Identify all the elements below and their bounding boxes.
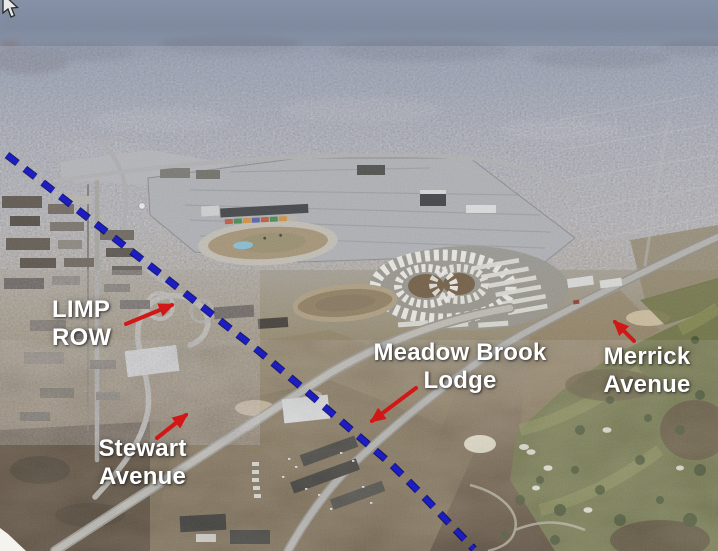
- label-stewart-avenue: Stewart Avenue: [90, 435, 195, 491]
- label-meadow-brook-lodge: Meadow Brook Lodge: [362, 339, 558, 395]
- label-merrick-avenue: Merrick Avenue: [592, 343, 702, 399]
- atmospheric-haze: [0, 0, 718, 140]
- label-limp-row: LIMP ROW: [52, 296, 132, 352]
- screenshot: LIMP ROW Stewart Avenue Meadow Brook Lod…: [0, 0, 718, 551]
- mouse-cursor-icon: [0, 0, 21, 22]
